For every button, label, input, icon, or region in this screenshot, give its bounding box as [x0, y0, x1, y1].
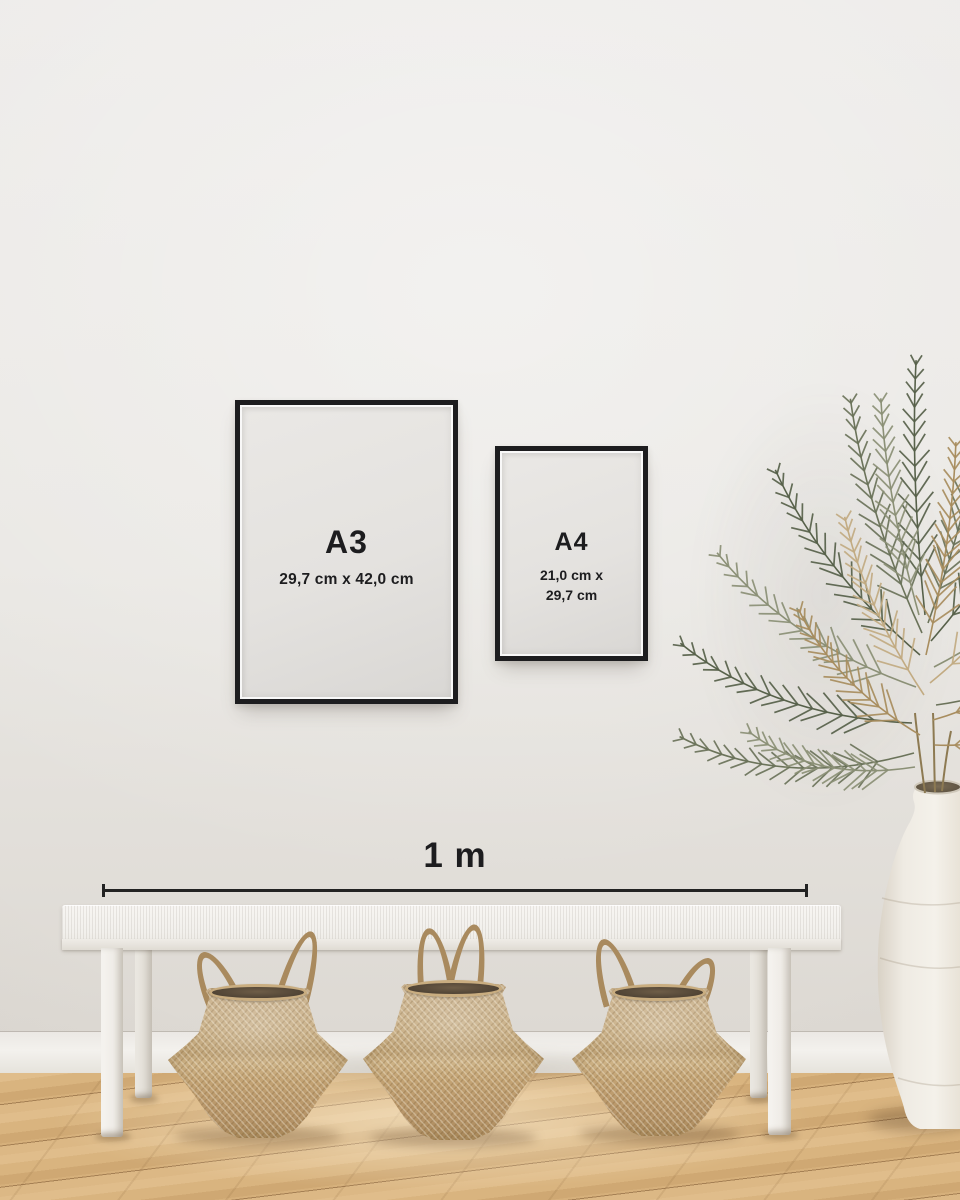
white-urn-vase [870, 780, 960, 1132]
basket-opening [405, 980, 503, 997]
basket-opening [209, 984, 306, 1001]
scale-bar-left-tick [102, 884, 105, 897]
scale-bar-label: 1 m [103, 836, 807, 876]
bench-leg [750, 948, 767, 1098]
a4-dimensions-line1: 21,0 cm x [540, 565, 603, 586]
bench-rail [62, 939, 841, 950]
bench-leg-shadow [130, 1094, 158, 1103]
a3-dimensions: 29,7 cm x 42,0 cm [279, 571, 413, 589]
bench-leg-shadow [95, 1132, 131, 1141]
a4-size-label: A4 [555, 528, 589, 557]
basket-opening [612, 984, 706, 1001]
vase-body [878, 780, 960, 1129]
bench-leg [135, 948, 152, 1098]
basket-body [363, 984, 544, 1140]
basket-body [168, 988, 348, 1138]
bench-leg-shadow [762, 1130, 798, 1139]
a3-size-label: A3 [325, 524, 368, 561]
dried-palm-plant [620, 315, 960, 815]
seagrass-basket [572, 988, 746, 1136]
seagrass-basket [363, 984, 544, 1140]
bench-seat [62, 905, 841, 950]
bench-leg [101, 948, 123, 1137]
size-guide-mockup-scene: A3 29,7 cm x 42,0 cm A4 21,0 cm x 29,7 c… [0, 0, 960, 1200]
scale-bar-right-tick [805, 884, 808, 897]
basket-body [572, 988, 746, 1136]
framed-print-a3: A3 29,7 cm x 42,0 cm [235, 400, 458, 704]
seagrass-basket [168, 988, 348, 1138]
scale-bar-line [103, 889, 807, 892]
a4-dimensions-line2: 29,7 cm [540, 585, 603, 606]
plant-stems [915, 713, 951, 793]
bench-leg [768, 948, 791, 1135]
a4-dimensions: 21,0 cm x 29,7 cm [540, 565, 603, 606]
